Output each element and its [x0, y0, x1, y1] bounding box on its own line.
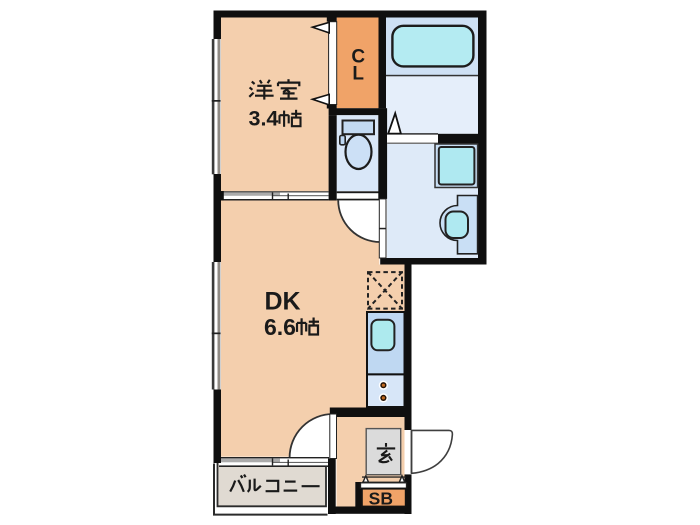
svg-text:3.4: 3.4 [249, 107, 279, 131]
svg-text:SB: SB [369, 488, 393, 508]
svg-text:DK: DK [265, 288, 301, 316]
svg-text:6.6: 6.6 [264, 314, 296, 340]
svg-text:L: L [352, 64, 364, 85]
